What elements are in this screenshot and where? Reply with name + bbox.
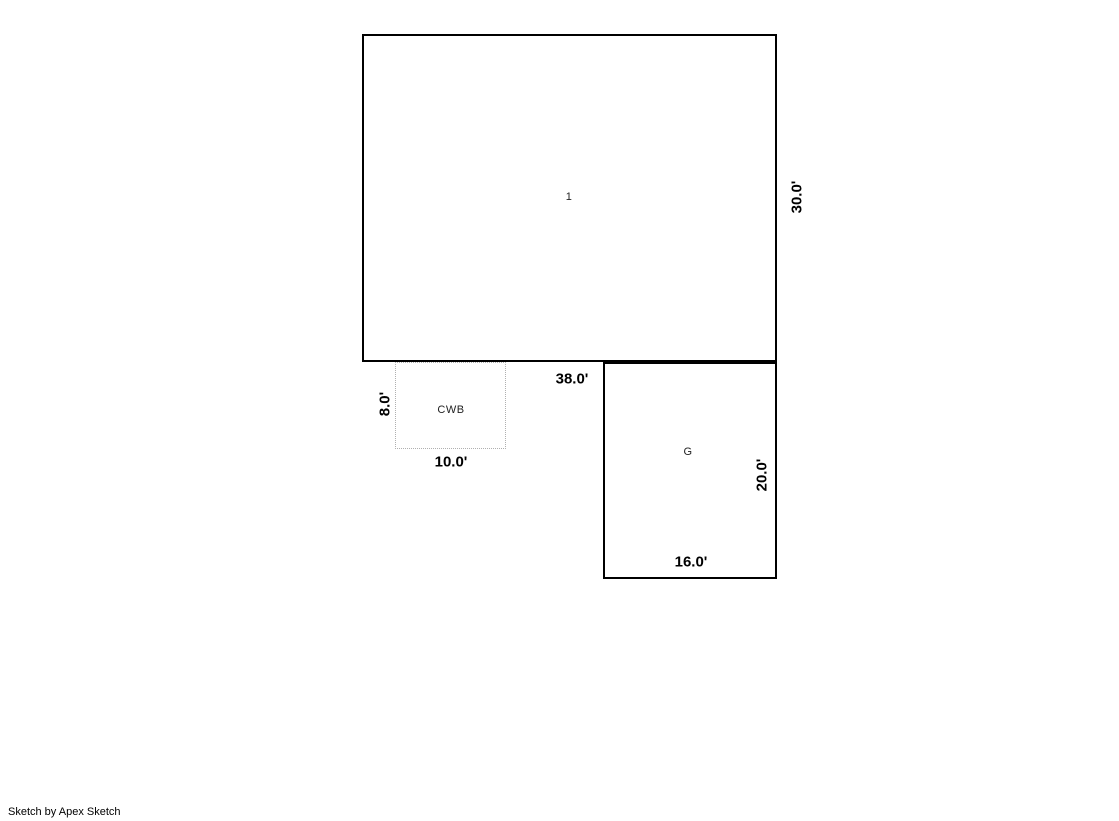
area-1-width-dimension: 38.0' [556,371,589,388]
garage-height-dimension: 20.0' [754,459,771,492]
cwb-height-dimension: 8.0' [377,392,394,416]
sketch-credit-text: Sketch by Apex Sketch [8,806,121,818]
garage-label: G [683,446,692,458]
garage-outline [603,362,777,579]
area-1-label: 1 [566,191,573,203]
area-1-height-dimension: 30.0' [789,181,806,214]
cwb-width-dimension: 10.0' [435,454,468,471]
cwb-label: CWB [437,404,464,416]
garage-width-dimension: 16.0' [675,554,708,571]
sketch-canvas: 1 30.0' 38.0' CWB 8.0' 10.0' G 20.0' 16.… [0,0,1119,821]
